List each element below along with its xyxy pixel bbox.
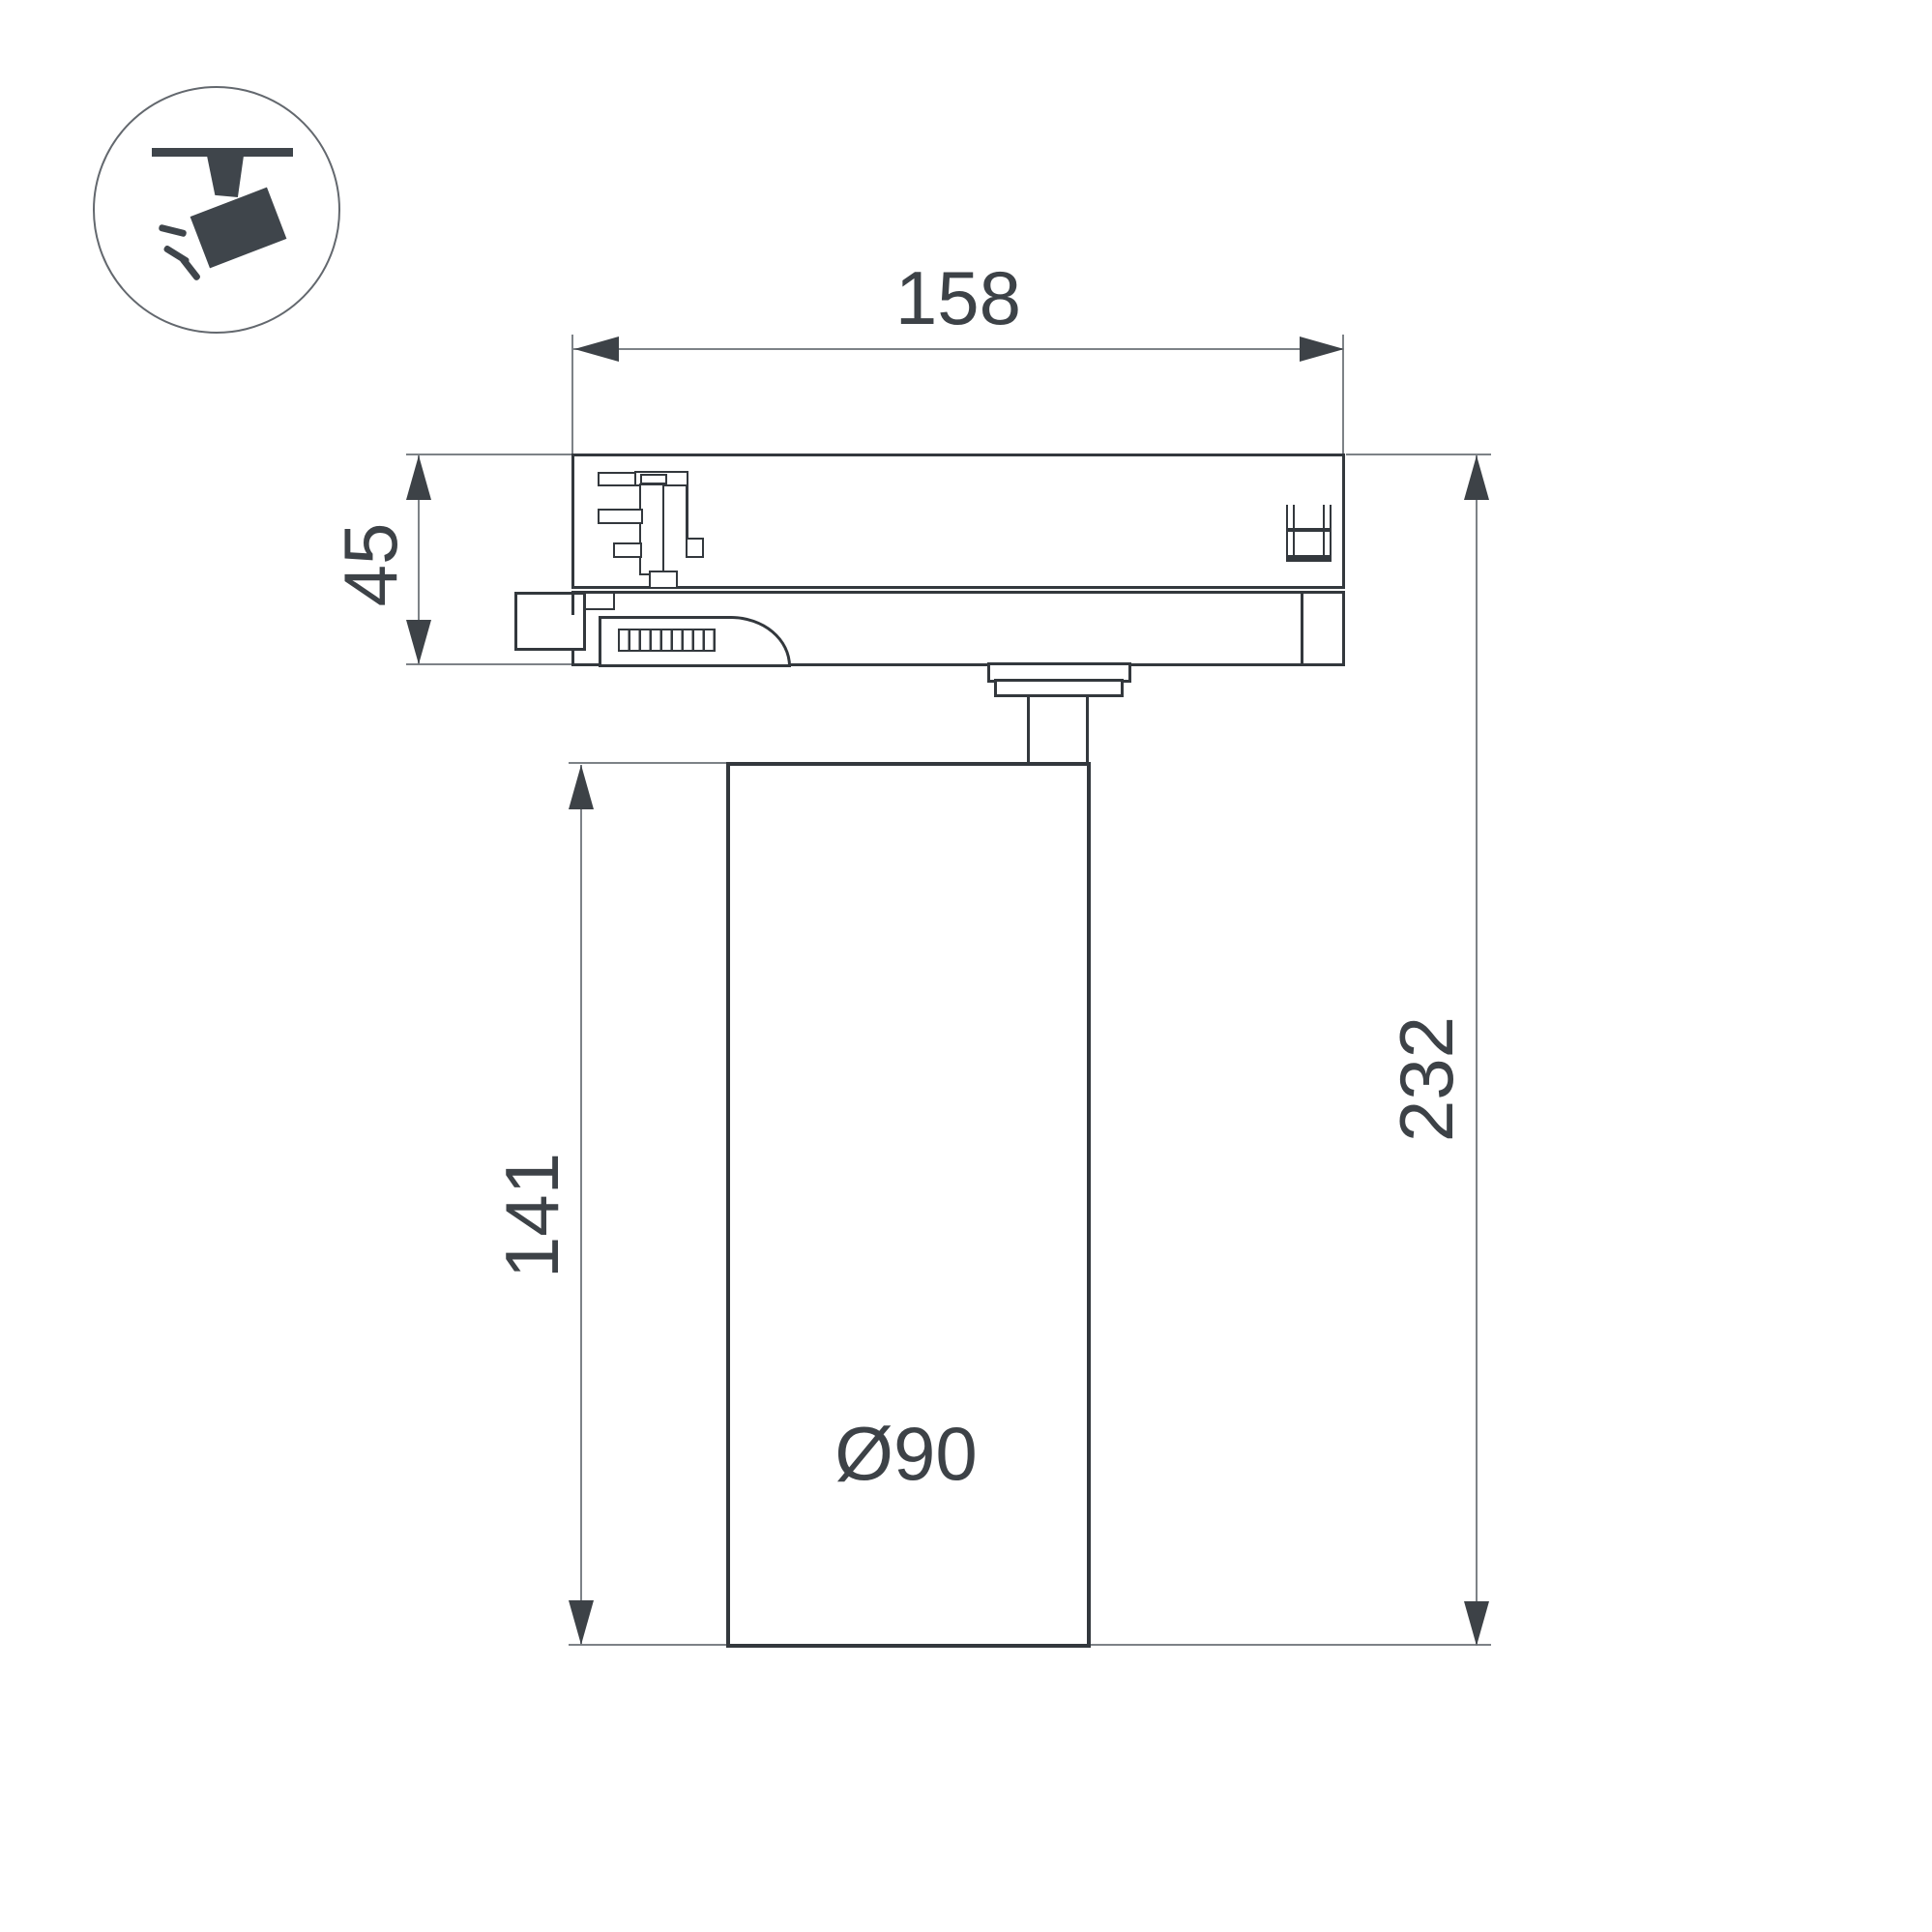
connector-right-line <box>686 484 688 542</box>
arrow-45-down <box>406 620 431 664</box>
connector-foot <box>649 571 678 589</box>
connector-prong-lower <box>613 542 642 558</box>
clamp-inner-line <box>571 594 574 615</box>
track-clip-left-wall <box>1286 505 1295 562</box>
connector-right-tab <box>686 538 704 558</box>
stem-right-line <box>1086 695 1089 766</box>
swivel-step-2 <box>994 679 1124 697</box>
arrow-158-right <box>1300 337 1344 362</box>
arrow-232-down <box>1464 1601 1489 1646</box>
adapter-housing-divider <box>1301 594 1303 664</box>
arrow-158-left <box>574 337 619 362</box>
clamp-box <box>514 592 586 651</box>
dim-label-body-diameter: Ø90 <box>809 1416 1003 1491</box>
dim-label-adapter-width: 158 <box>862 260 1055 336</box>
arrow-141-up <box>569 765 594 809</box>
grip-ridges <box>618 629 716 652</box>
dim-line-232 <box>1476 455 1478 1646</box>
dim-line-158 <box>573 348 1344 350</box>
lamp-body <box>726 762 1091 1648</box>
connector-vertical-bar <box>639 483 664 575</box>
track-clip-bottom-bar <box>1286 555 1332 562</box>
track-clip-middle-bar <box>1288 528 1331 532</box>
clamp-step-box <box>584 592 615 610</box>
dim-label-body-height: 141 <box>494 1119 570 1312</box>
ext-line-232-bottom <box>1091 1644 1491 1646</box>
ceiling-track-bar-icon <box>152 148 293 157</box>
ext-line-158-left <box>571 335 573 454</box>
arrow-45-up <box>406 455 431 500</box>
dim-label-overall-height: 232 <box>1389 982 1464 1176</box>
arrow-232-up <box>1464 455 1489 500</box>
arrow-141-down <box>569 1600 594 1645</box>
track-clip-right-wall <box>1323 505 1332 562</box>
ext-line-141-top <box>569 762 726 764</box>
connector-prong-middle <box>598 509 643 524</box>
stem-left-line <box>1027 695 1030 766</box>
dim-line-141 <box>580 765 582 1645</box>
technical-drawing-canvas: 158 45 141 232 Ø90 <box>0 0 1932 1932</box>
dim-label-adapter-height: 45 <box>333 468 408 661</box>
